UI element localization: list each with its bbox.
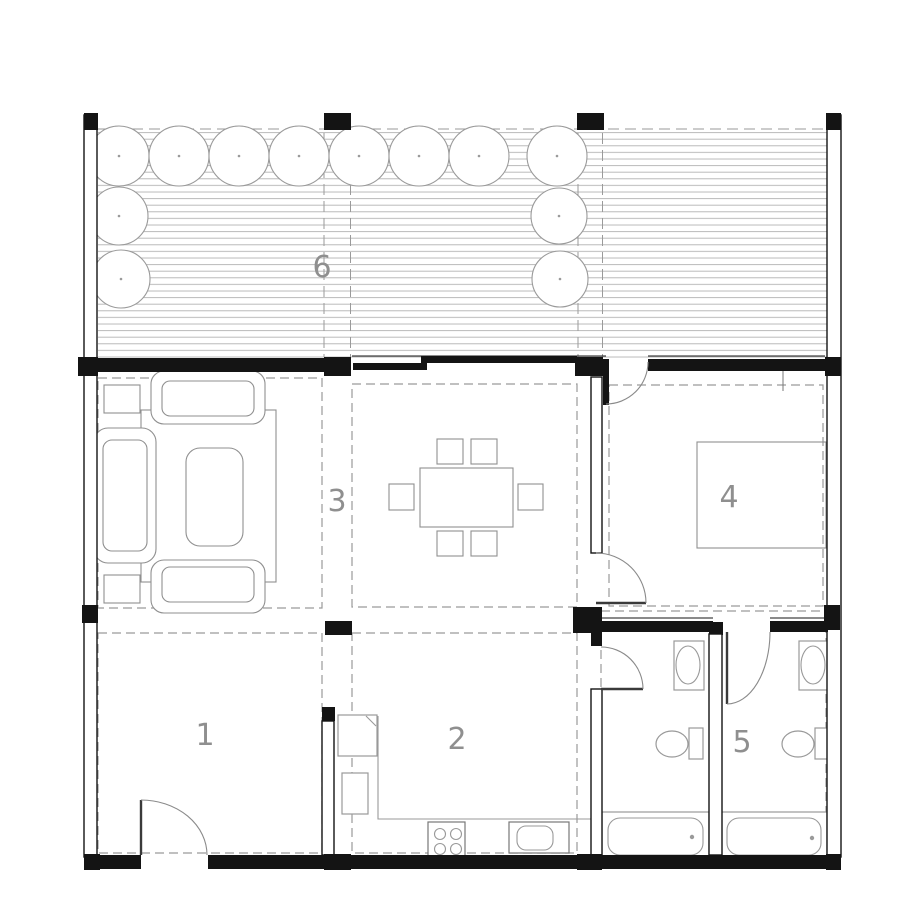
bathroom2-top-wall: [770, 621, 828, 632]
room-label-5: 5: [732, 725, 751, 760]
column: [577, 113, 604, 130]
tree: [532, 251, 588, 307]
tree: [449, 126, 509, 186]
coffee-table: [186, 448, 243, 546]
wall-cap: [591, 632, 602, 646]
dining-chair: [389, 484, 414, 510]
bedroom-wall: [591, 377, 602, 553]
column: [824, 605, 840, 630]
bathroom1-left-wall: [591, 689, 602, 855]
bathtub: [602, 812, 709, 860]
entry-door: [141, 800, 207, 855]
column: [573, 607, 602, 633]
sliding-door-panel: [421, 356, 577, 363]
room1-kitchen-wall: [322, 721, 334, 855]
dining-chair: [471, 531, 497, 556]
bedroom-terrace-wall: [648, 359, 825, 371]
bathtub: [721, 812, 827, 860]
column: [325, 621, 352, 635]
terrace-wall: [84, 358, 330, 372]
bathroom-sink: [799, 641, 829, 690]
bedroom-outline: [609, 385, 823, 606]
room-label-4: 4: [719, 480, 738, 515]
living-room: [94, 371, 276, 613]
terrace-bedroom-door: [603, 359, 648, 405]
tree: [149, 126, 209, 186]
sliding-door-panel: [353, 363, 427, 370]
wall-cap: [709, 622, 723, 635]
column: [826, 854, 841, 870]
tree: [329, 126, 389, 186]
column: [82, 605, 98, 623]
bedroom: [697, 442, 826, 548]
column: [577, 854, 602, 870]
exterior-wall-left: [84, 115, 97, 857]
tree: [92, 250, 150, 308]
dining-area: [389, 439, 543, 556]
floor-plan-page: 1 2 3 4 5 6: [0, 0, 922, 900]
tree: [90, 187, 148, 245]
column: [324, 854, 351, 870]
toilet: [656, 728, 703, 759]
sofa-bottom: [151, 560, 265, 613]
kitchen-cabinet: [342, 773, 368, 814]
side-table: [104, 575, 140, 603]
toilet: [782, 728, 828, 759]
room-label-3: 3: [327, 484, 346, 519]
room-label-6: 6: [312, 250, 331, 285]
bathroom-divider-wall: [709, 634, 722, 855]
bathroom-1: [602, 641, 709, 860]
bed: [697, 442, 826, 548]
tree: [389, 126, 449, 186]
tree: [89, 126, 149, 186]
column: [825, 357, 841, 376]
tree: [209, 126, 269, 186]
dining-chair: [437, 439, 463, 464]
room-label-1: 1: [195, 718, 214, 753]
dining-chair: [437, 531, 463, 556]
dining-chair: [471, 439, 497, 464]
bathroom1-top-wall: [602, 621, 713, 632]
sofa-top: [151, 371, 265, 424]
bathroom2-door: [727, 632, 770, 704]
sofa-left: [94, 428, 156, 563]
dining-chair: [518, 484, 543, 510]
exterior-wall-right: [827, 115, 841, 857]
column: [826, 113, 841, 130]
bathroom1-door: [601, 647, 643, 689]
kitchen-sink: [509, 822, 569, 853]
room-label-2: 2: [447, 722, 466, 757]
column: [84, 854, 100, 870]
dining-table: [420, 468, 513, 527]
floor-plan-drawing: 1 2 3 4 5 6: [0, 0, 922, 900]
tree: [269, 126, 329, 186]
stove: [428, 822, 465, 857]
wall-cap: [322, 707, 335, 721]
column: [324, 357, 351, 376]
terrace: [89, 126, 828, 358]
column: [575, 357, 603, 376]
side-table: [104, 385, 140, 413]
bathroom-sink: [674, 641, 704, 690]
dining-bedroom-door: [596, 553, 646, 603]
column: [324, 113, 351, 130]
exterior-wall-bottom: [208, 855, 841, 869]
tree: [527, 126, 587, 186]
column: [84, 113, 98, 130]
column: [78, 357, 98, 376]
tree: [531, 188, 587, 244]
counter-edge: [378, 716, 591, 819]
